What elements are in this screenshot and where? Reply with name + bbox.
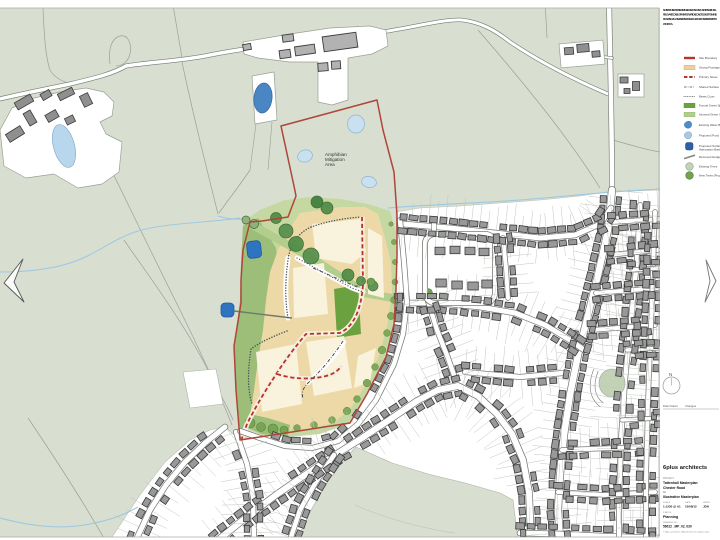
svg-text:Chester Road: Chester Road xyxy=(663,486,685,490)
svg-text:Site Boundary: Site Boundary xyxy=(699,56,718,60)
svg-text:PROJECT: PROJECT xyxy=(663,477,675,480)
svg-text:Informal Green Space: Informal Green Space xyxy=(699,113,720,117)
svg-text:Proposed Pond: Proposed Pond xyxy=(699,134,719,138)
svg-text:Strong Frontage: Strong Frontage xyxy=(699,66,720,70)
svg-text:DRAWING. ALL DIMENSIONS TO BE: DRAWING. ALL DIMENSIONS TO BE CHECKED ON… xyxy=(663,17,718,21)
svg-text:Area: Area xyxy=(325,162,335,167)
svg-text:Illustrative Masterplan: Illustrative Masterplan xyxy=(663,495,699,499)
svg-text:Removed Hedgerow: Removed Hedgerow xyxy=(699,155,720,159)
svg-text:Attenuation Basin: Attenuation Basin xyxy=(699,148,720,152)
svg-text:Existing Water Body: Existing Water Body xyxy=(699,123,720,127)
svg-text:10/08/12: 10/08/12 xyxy=(685,505,697,509)
svg-text:Mews Court: Mews Court xyxy=(699,95,715,99)
svg-text:JDH: JDH xyxy=(703,505,709,509)
svg-text:RELEVANT CONSULTANT INFORMATIO: RELEVANT CONSULTANT INFORMATION. DO NOT … xyxy=(663,13,717,17)
svg-text:New Trees (Proposed): New Trees (Proposed) xyxy=(699,174,720,178)
svg-text:Formal Green Space: Formal Green Space xyxy=(699,104,720,108)
svg-text:STATUS: STATUS xyxy=(663,511,672,514)
svg-text:NOTES: THIS DRAWING IS TO BE R: NOTES: THIS DRAWING IS TO BE READ IN CON… xyxy=(663,8,717,12)
svg-text:Planning: Planning xyxy=(663,515,678,519)
svg-text:Primary Street: Primary Street xyxy=(699,75,718,79)
svg-text:Tattenhall Masterplan: Tattenhall Masterplan xyxy=(663,481,698,485)
svg-text:© 6plus architects | Manches: © 6plus architects | Manchester | London… xyxy=(663,531,710,534)
svg-text:1:1250 @ A1: 1:1250 @ A1 xyxy=(663,505,681,509)
svg-text:WORKS.: WORKS. xyxy=(663,22,673,26)
svg-text:for: for xyxy=(663,490,666,494)
svg-text:N: N xyxy=(669,372,672,377)
svg-text:Shared Surface: Shared Surface xyxy=(699,85,719,89)
svg-text:56022 _MP_02_030: 56022 _MP_02_030 xyxy=(663,525,692,529)
svg-text:Existing Trees: Existing Trees xyxy=(699,165,718,169)
svg-text:Changes: Changes xyxy=(685,404,697,408)
svg-text:6plus architects: 6plus architects xyxy=(663,465,707,471)
svg-text:Date Drawn: Date Drawn xyxy=(663,404,678,408)
